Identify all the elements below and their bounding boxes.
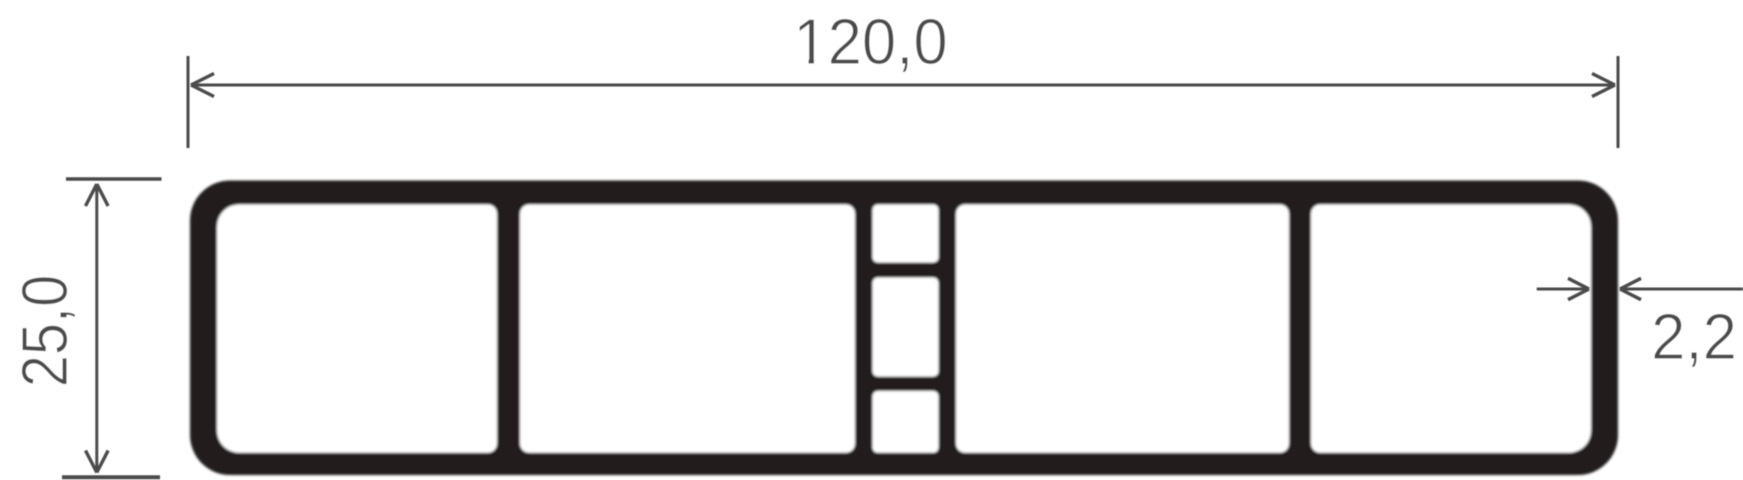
svg-text:2,2: 2,2 bbox=[1651, 302, 1737, 374]
svg-text:120,0: 120,0 bbox=[793, 7, 947, 79]
svg-text:25,0: 25,0 bbox=[9, 275, 82, 388]
